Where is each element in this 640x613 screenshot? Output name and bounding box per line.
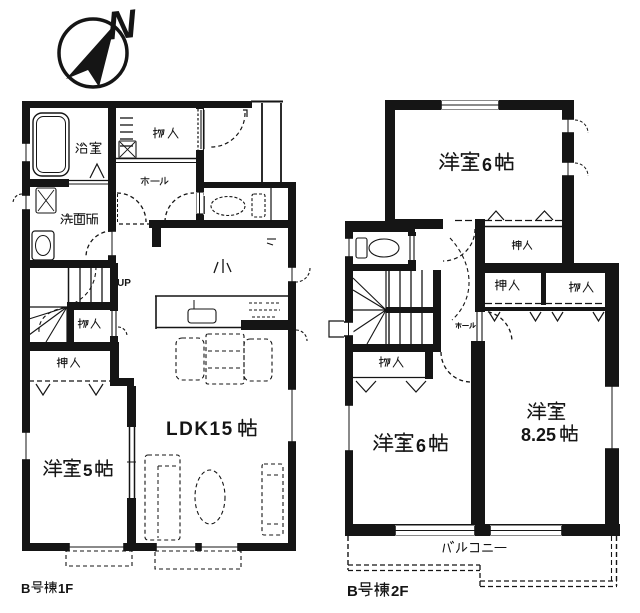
svg-text:B: B: [21, 581, 30, 596]
svg-text:8.25: 8.25: [521, 425, 556, 445]
svg-text:UP: UP: [117, 278, 131, 289]
svg-text:1F: 1F: [58, 581, 73, 596]
svg-text:6: 6: [416, 436, 426, 456]
svg-text:6: 6: [482, 155, 492, 175]
svg-text:LDK15: LDK15: [166, 419, 234, 440]
svg-text:2F: 2F: [391, 583, 409, 600]
svg-text:B: B: [347, 583, 358, 600]
svg-text:5: 5: [83, 461, 92, 480]
svg-text:N: N: [105, 2, 139, 49]
